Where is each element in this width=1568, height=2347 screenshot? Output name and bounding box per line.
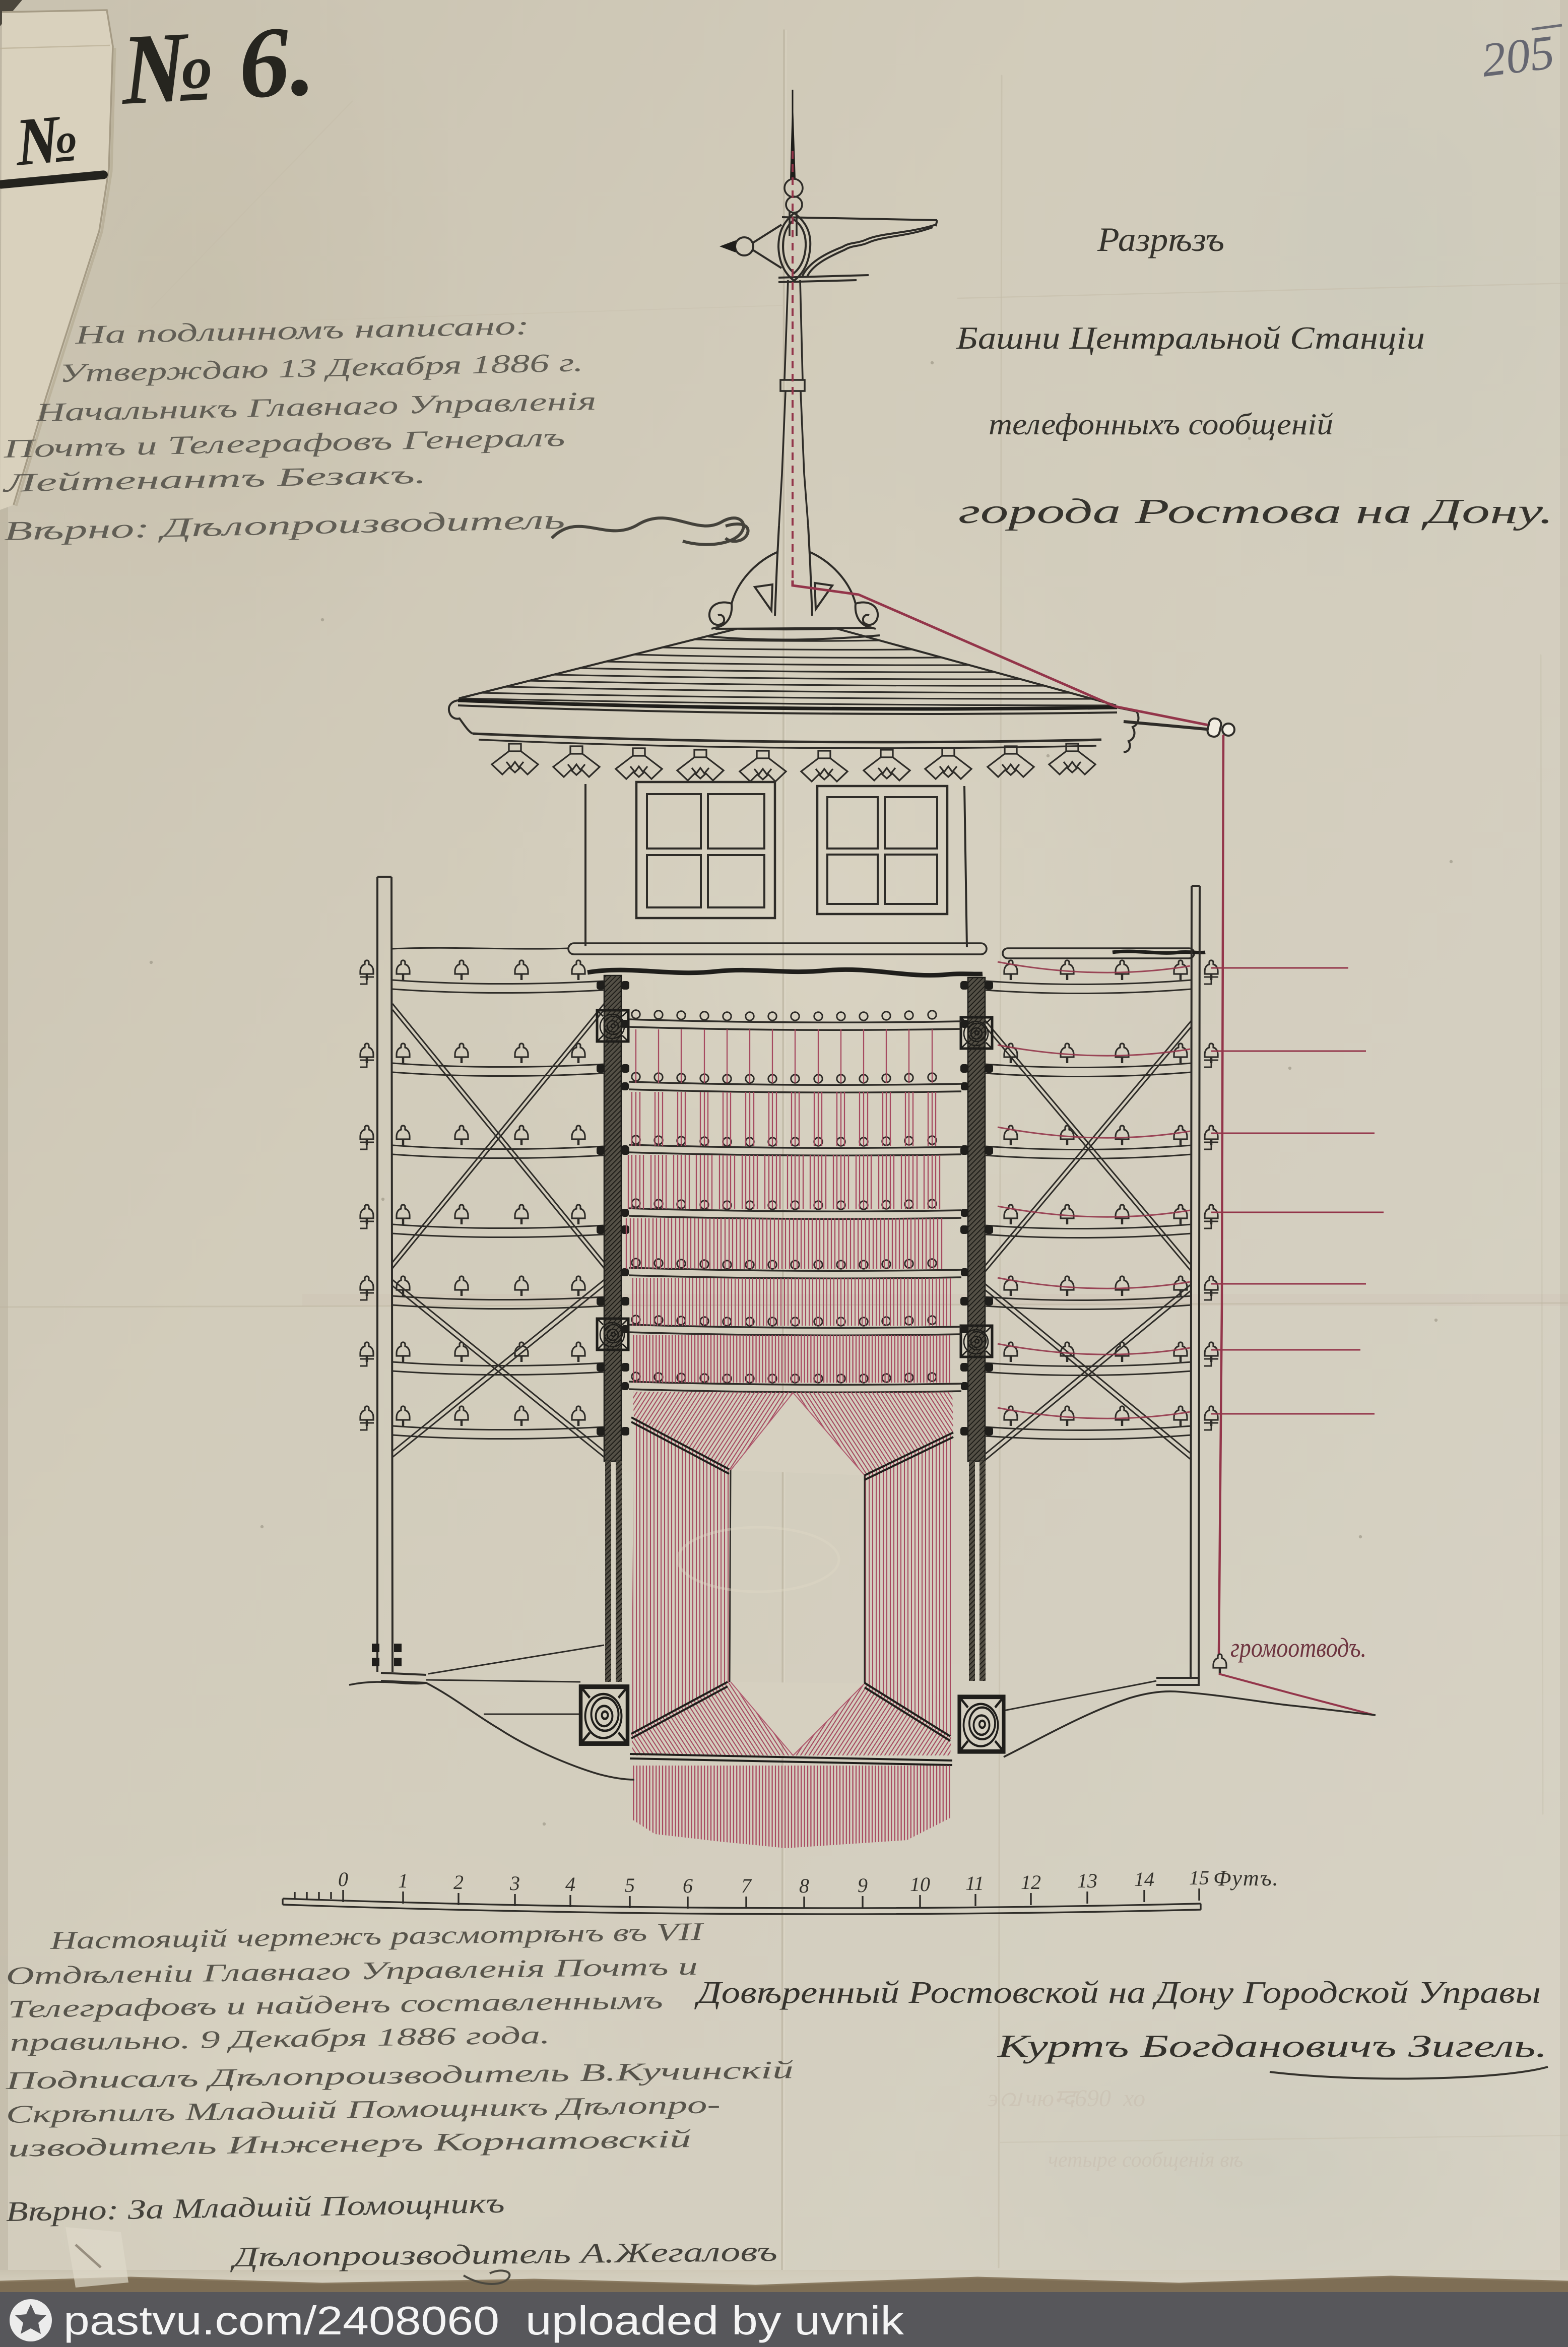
svg-text:громоотводъ.: громоотводъ.	[1230, 1633, 1366, 1663]
svg-text:телефонныхъ сообщеній: телефонныхъ сообщеній	[989, 408, 1333, 441]
svg-text:9: 9	[858, 1874, 868, 1897]
svg-text:№ 6.: № 6.	[117, 5, 317, 126]
svg-text:6: 6	[683, 1874, 693, 1897]
svg-text:11: 11	[965, 1872, 984, 1895]
svg-text:Футъ.: Футъ.	[1213, 1866, 1279, 1890]
svg-text:0: 0	[338, 1868, 348, 1890]
svg-text:12: 12	[1021, 1871, 1041, 1894]
svg-text:1: 1	[398, 1869, 408, 1892]
svg-text:№: №	[12, 100, 81, 180]
svg-text:города Ростова на Дону.: города Ростова на Дону.	[958, 492, 1553, 531]
svg-text:3: 3	[509, 1872, 520, 1895]
svg-text:13: 13	[1077, 1869, 1097, 1892]
svg-text:8: 8	[799, 1874, 809, 1897]
svg-text:четыре сообщенія вѣ: четыре сообщенія вѣ	[1048, 2148, 1243, 2172]
svg-text:Довѣренный Ростовской на Дону: Довѣренный Ростовской на Дону Городской …	[694, 1976, 1541, 2010]
svg-text:7: 7	[741, 1874, 752, 1897]
svg-text:2: 2	[453, 1871, 464, 1894]
svg-text:Куртъ Богдановичъ Зигель.: Куртъ Богдановичъ Зигель.	[997, 2028, 1547, 2064]
svg-text:15: 15	[1189, 1866, 1209, 1889]
svg-text:4: 4	[565, 1873, 575, 1896]
svg-text:10: 10	[910, 1873, 930, 1896]
svg-text:pastvu.com/2408060 uploaded b: pastvu.com/2408060 uploaded by uvnik	[63, 2298, 904, 2343]
svg-text:Разрѣзъ: Разрѣзъ	[1097, 220, 1224, 258]
svg-text:205: 205	[1479, 25, 1557, 87]
svg-text:эവ чюम्द690 хо: эവ чюम्द690 хо	[988, 2085, 1145, 2112]
svg-text:14: 14	[1134, 1868, 1154, 1890]
svg-text:5: 5	[625, 1874, 635, 1897]
svg-text:Башни Центральной Станціи: Башни Центральной Станціи	[956, 320, 1425, 356]
svg-text:Дѣлопроизводитель А.Жегаловъ: Дѣлопроизводитель А.Жегаловъ	[230, 2236, 778, 2273]
